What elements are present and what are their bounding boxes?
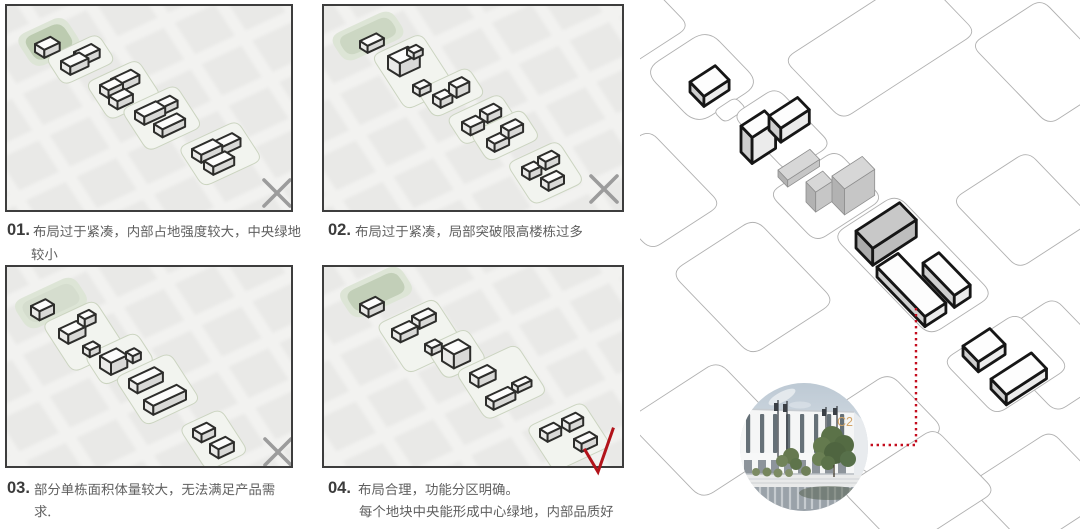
svg-text:C2: C2: [837, 415, 853, 429]
